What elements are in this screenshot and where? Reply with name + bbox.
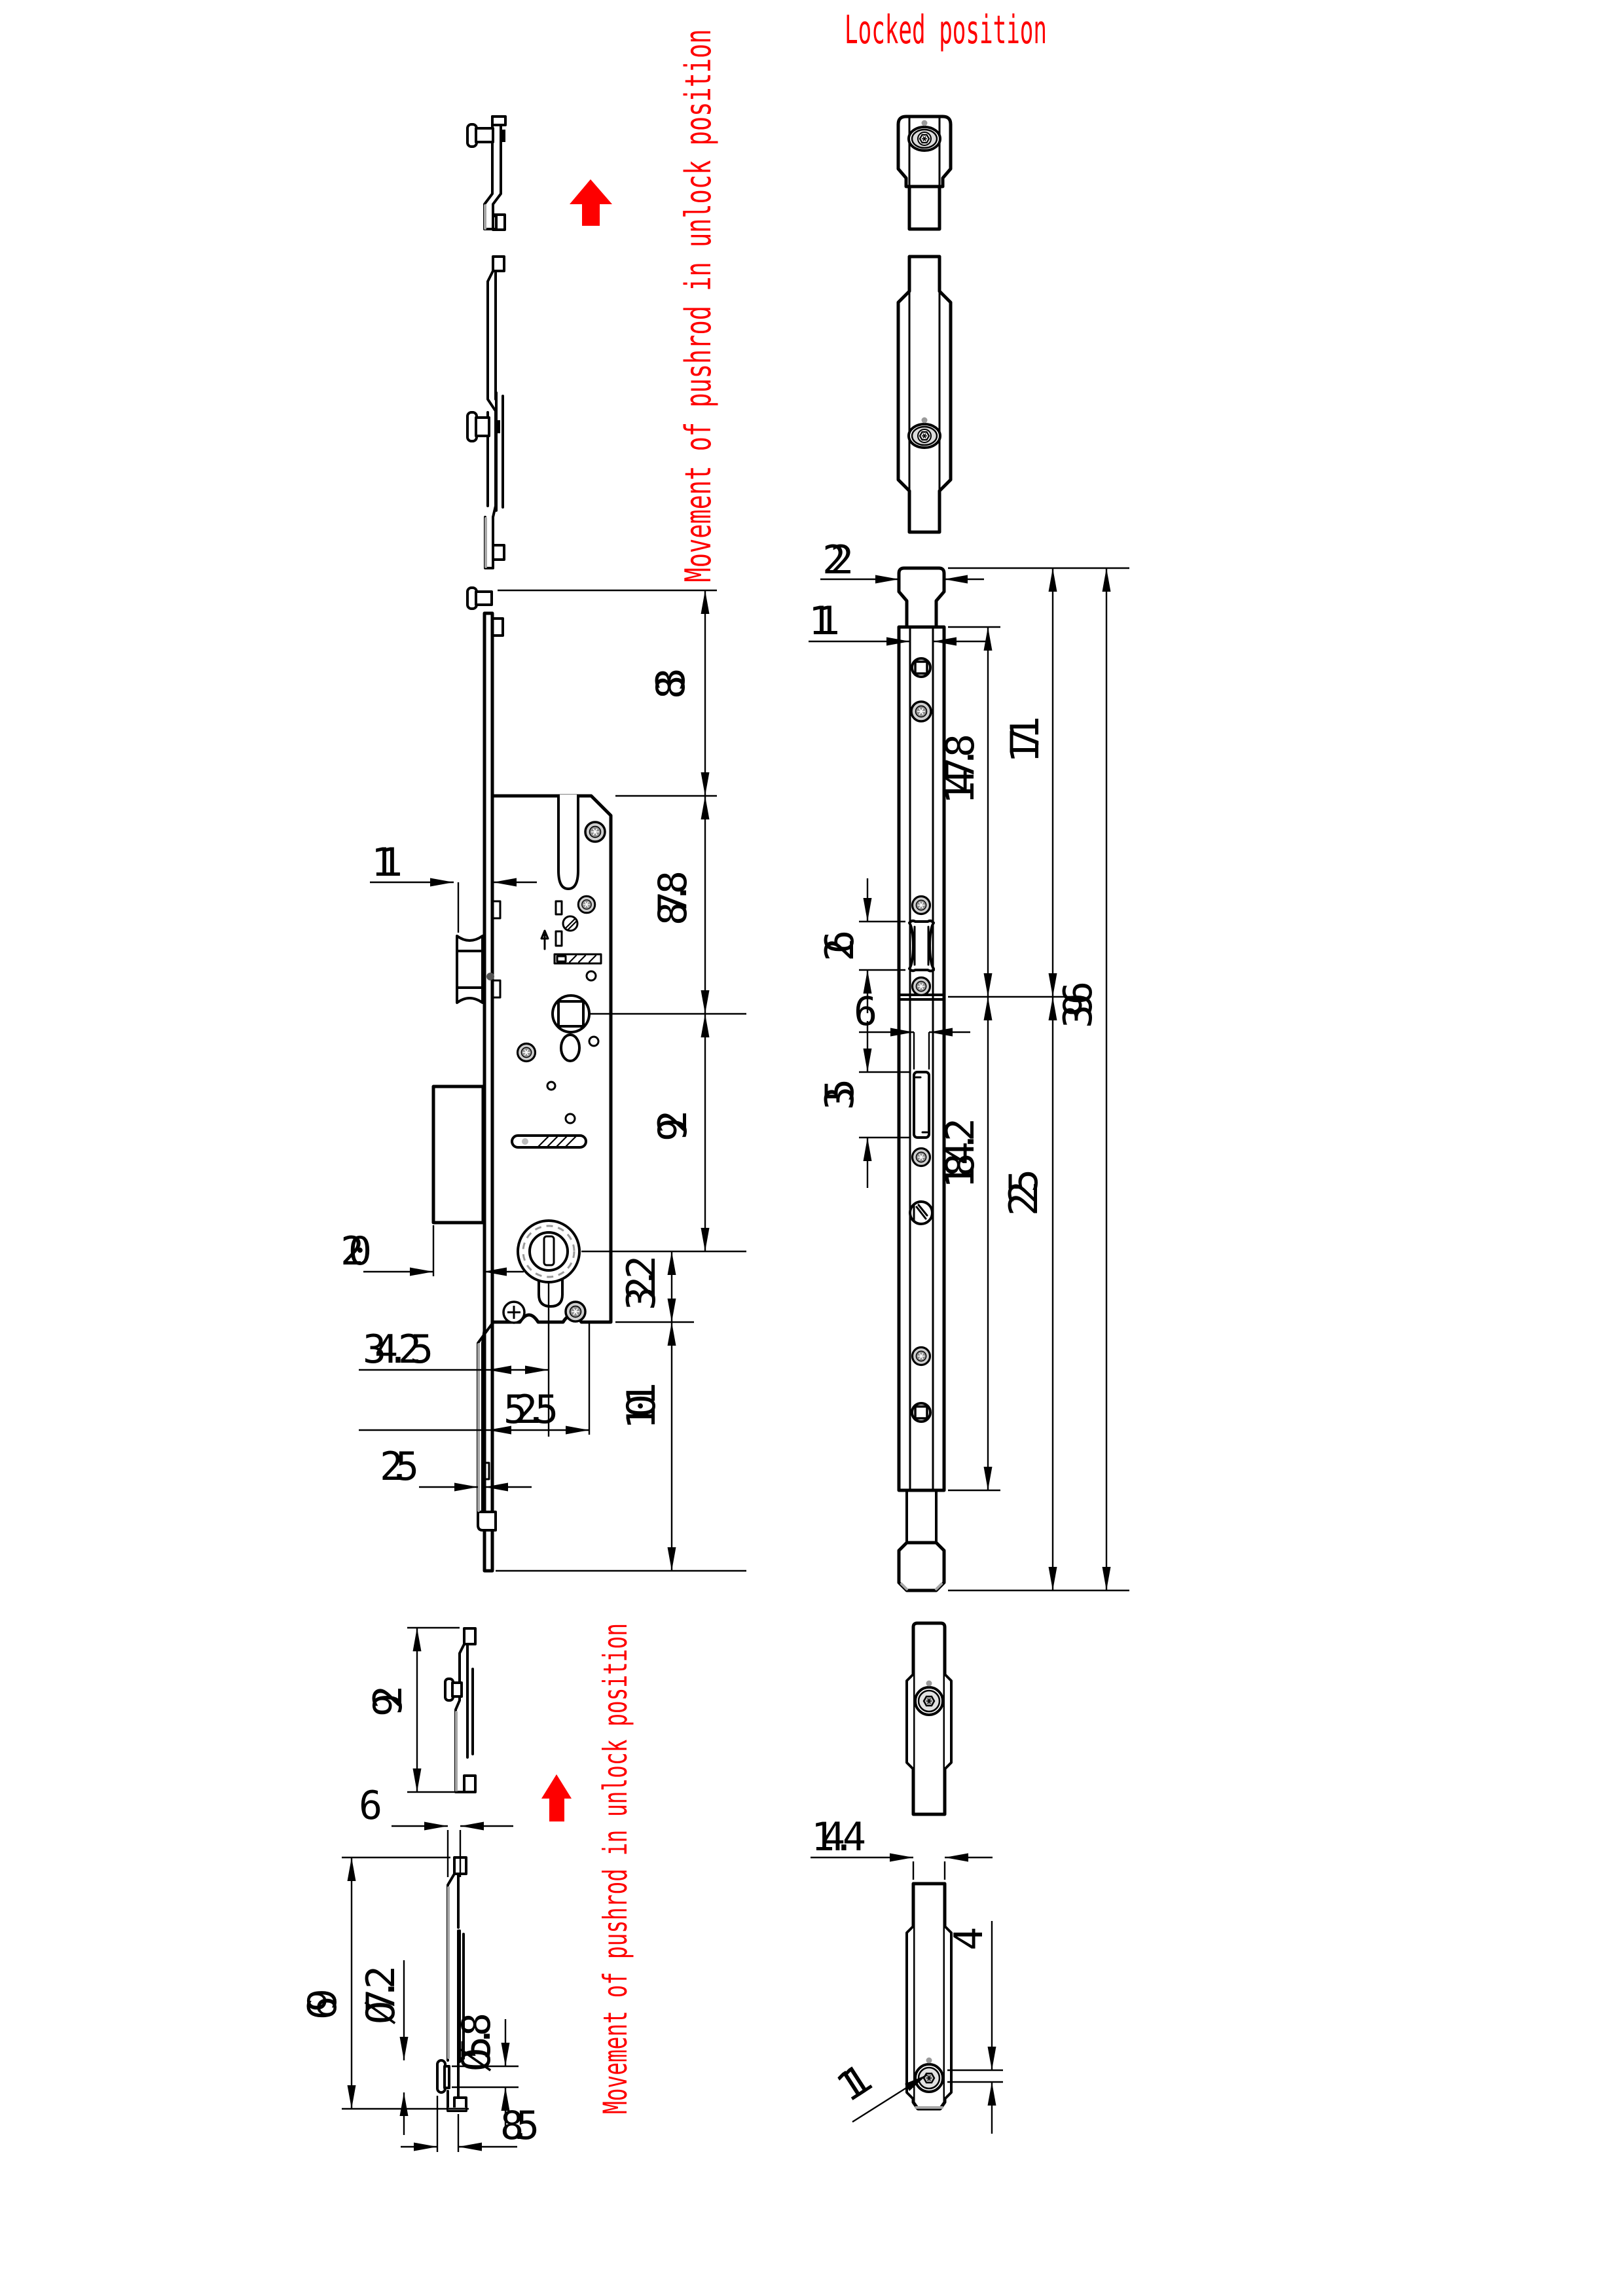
roller-cam-front xyxy=(909,921,934,971)
pushrod-detail-side-dimensions: 92 6 69 Ø7.2 Ø5.8 8.5 xyxy=(300,1628,539,2152)
adjustment-slot xyxy=(914,1072,929,1138)
latch-notch xyxy=(558,795,578,889)
dim-171-label: 171 xyxy=(1002,716,1048,763)
dim-26-label: 26 xyxy=(817,930,863,961)
dim-4-label: 4 xyxy=(946,1927,992,1950)
dim-5.8-label: Ø5.8 xyxy=(454,2013,500,2072)
dim-69-label: 69 xyxy=(300,1988,346,2020)
dim-225-label: 225 xyxy=(1001,1169,1047,1216)
pushrod-piece-top-side-1 xyxy=(467,117,505,230)
dim-22-label: 22 xyxy=(822,537,854,583)
movement-unlock-bottom-label: Movement of pushrod in unlock position xyxy=(596,1623,634,2114)
dim-92-label: 92 xyxy=(650,1110,696,1141)
dim-2.5-label: 2.5 xyxy=(380,1444,419,1490)
pushrod-piece-top-front-1 xyxy=(898,117,951,229)
unlock-movement-arrow-top-icon xyxy=(570,179,612,226)
dim-101-label: 101 xyxy=(619,1382,665,1429)
dim-7.2-label: Ø7.2 xyxy=(358,1965,404,2024)
dim-92-label: 92 xyxy=(365,1685,411,1717)
dim-87.8-label: 87.8 xyxy=(650,870,696,925)
dim-396-label: 396 xyxy=(1055,981,1101,1028)
dim-83-label: 83 xyxy=(648,668,694,699)
pushrod-front-view-dimensions: 22 11 147.8 184.2 171 225 396 26 6 35 xyxy=(809,537,1129,1590)
dim-52.5-label: 52.5 xyxy=(503,1387,558,1433)
shootbolt-head xyxy=(899,568,944,627)
dim-20-label: 20 xyxy=(340,1229,372,1274)
pushrod-front-view xyxy=(899,568,944,1590)
technical-drawing-page: Locked position Movement of pushrod in u… xyxy=(0,0,1623,2296)
dim-35-label: 35 xyxy=(817,1079,863,1110)
movement-unlock-top-label: Movement of pushrod in unlock position xyxy=(678,29,719,583)
pushrod-piece-bottom-front-1 xyxy=(907,1623,951,1814)
roller-cam-side xyxy=(457,936,483,1003)
dim-11-leader-label: 11 xyxy=(829,2056,880,2111)
dim-32.2-label: 32.2 xyxy=(619,1255,665,1310)
pushrod-piece-bottom-side-2 xyxy=(437,1857,466,2111)
dim-11-label: 11 xyxy=(809,598,840,644)
dim-147.8-label: 147.8 xyxy=(938,734,983,804)
cam-screw xyxy=(910,1202,932,1224)
dim-8.5-label: 8.5 xyxy=(500,2103,539,2149)
dim-34.25-label: 34.25 xyxy=(363,1327,433,1372)
pushrod-piece-bottom-front-2 xyxy=(907,1884,951,2109)
deadbolt-block xyxy=(433,1086,483,1223)
lock-technical-drawing: Locked position Movement of pushrod in u… xyxy=(0,0,1623,2296)
unlock-movement-arrow-bottom-icon xyxy=(541,1774,572,1821)
locked-position-label: Locked position xyxy=(845,7,1047,53)
dim-184.2-label: 184.2 xyxy=(938,1118,983,1189)
pushrod-piece-top-side-2 xyxy=(467,257,504,568)
dim-14.4-label: 14.4 xyxy=(811,1814,866,1860)
pushrod-piece-top-front-2 xyxy=(898,257,951,532)
shootbolt-end xyxy=(899,1543,944,1590)
pushrod-piece-bottom-side-1 xyxy=(445,1628,475,1792)
dim-6-label: 6 xyxy=(359,1783,382,1829)
dim-6-label: 6 xyxy=(854,989,877,1035)
dim-11-label: 11 xyxy=(371,840,403,886)
